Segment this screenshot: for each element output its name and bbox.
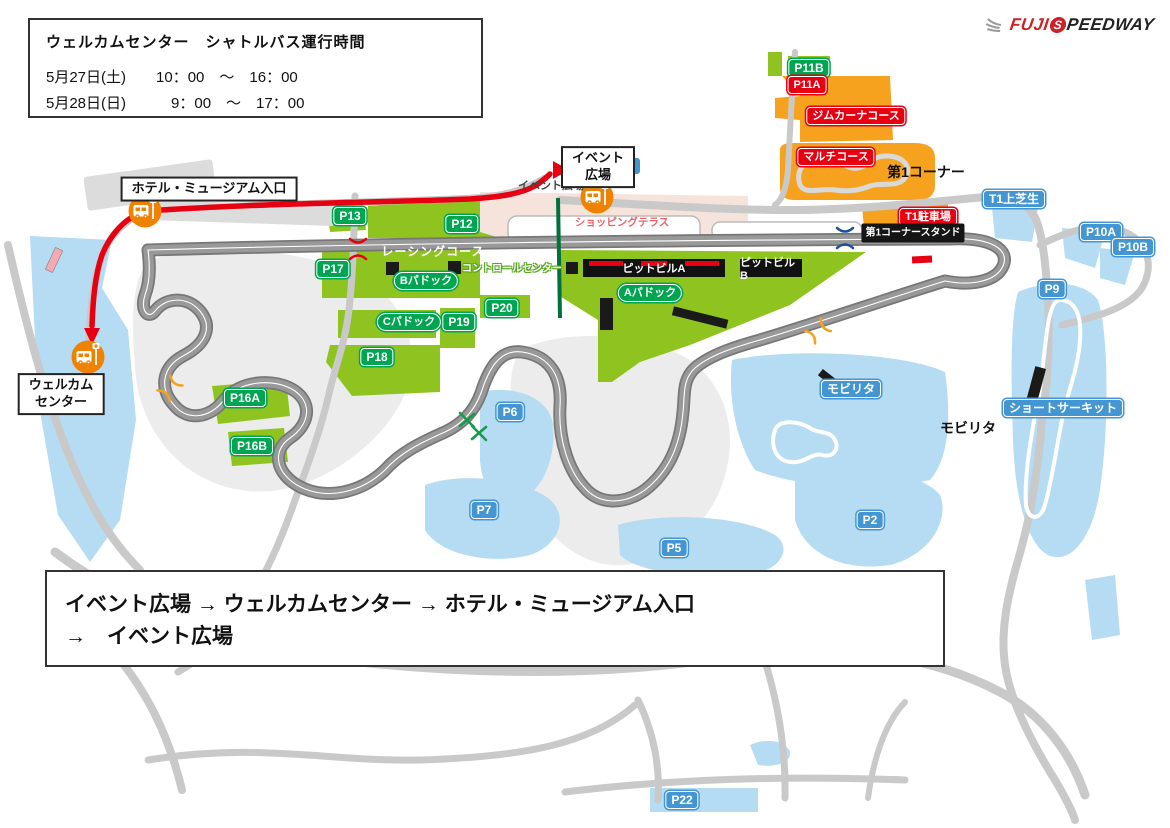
logo-peedway-text: PEEDWAY: [1065, 15, 1155, 35]
badge-c-paddock: Cパドック: [377, 313, 441, 331]
badge-p10b: P10B: [1112, 238, 1154, 256]
pit-building-b: ピットビルB: [740, 259, 802, 277]
logo-s-circle: S: [1049, 17, 1067, 33]
label-mobilitas: モビリタ: [940, 418, 996, 438]
badge-b-paddock: Bパドック: [394, 272, 458, 290]
pit-building-a: ピットビルA: [583, 259, 725, 277]
badge-p20: P20: [485, 299, 518, 317]
badge-p11a: P11A: [788, 76, 827, 94]
callout-event-plaza-line2: 広場: [572, 167, 624, 184]
callout-welcome-center-line1: ウェルカム: [29, 377, 94, 394]
callout-welcome-center-line2: センター: [29, 394, 94, 411]
shuttle-schedule-box: ウェルカムセンター シャトルバス運行時間 5月27日(土) 10：00 ～ 16…: [28, 18, 483, 118]
fuji-speedway-logo: FUJI S PEEDWAY: [983, 15, 1155, 35]
fuji-speedway-shuttle-map: { "schedule_box": { "title": "ウェルカムセンター …: [0, 0, 1170, 828]
schedule-row-sat: 5月27日(土) 10：00 ～ 16：00: [46, 66, 465, 87]
badge-a-paddock: Aパドック: [618, 284, 682, 302]
badge-p22: P22: [665, 791, 698, 809]
badge-p16b: P16B: [231, 437, 273, 455]
shuttle-route-box: イベント広場 → ウェルカムセンター → ホテル・ミュージアム入口 → イベント…: [45, 570, 945, 667]
schedule-row-sun: 5月28日(日) 9：00 ～ 17：00: [46, 92, 465, 113]
label-shopping-terrace: ショッピングテラス: [575, 215, 669, 230]
circuit-map: [0, 0, 1170, 828]
badge-p6: P6: [497, 403, 524, 421]
logo-speed-lines: [984, 16, 1009, 34]
callout-hotel-museum-entrance: ホテル・ミュージアム入口: [121, 177, 298, 202]
badge-gymkhana-course: ジムカーナコース: [806, 107, 905, 125]
pedestrian-bridge: [558, 198, 560, 318]
badge-p16a: P16A: [224, 389, 266, 407]
callout-event-plaza: イベント 広場: [561, 146, 635, 188]
route-line1: イベント広場 → ウェルカムセンター → ホテル・ミュージアム入口: [65, 589, 925, 621]
route-line2: → イベント広場: [65, 621, 925, 653]
label-control-center: コントロールセンター: [462, 260, 562, 275]
badge-t1-lawn: T1上芝生: [983, 190, 1045, 208]
callout-event-plaza-line1: イベント: [572, 150, 624, 167]
badge-short-circuit: ショートサーキット: [1003, 399, 1123, 417]
label-racing-course: レーシングコース: [381, 243, 484, 260]
badge-p7: P7: [471, 501, 498, 519]
badge-p2: P2: [857, 511, 884, 529]
badge-p18: P18: [360, 348, 393, 366]
schedule-title: ウェルカムセンター シャトルバス運行時間: [46, 31, 465, 52]
badge-multi-course: マルチコース: [797, 148, 874, 166]
badge-p9: P9: [1039, 280, 1066, 298]
badge-p12: P12: [445, 215, 478, 233]
badge-p11b: P11B: [788, 59, 829, 77]
badge-p17: P17: [316, 260, 349, 278]
badge-p13: P13: [333, 207, 366, 225]
logo-fuji-text: FUJI: [1008, 15, 1050, 35]
label-first-corner: 第1コーナー: [887, 162, 965, 182]
callout-welcome-center: ウェルカム センター: [18, 373, 105, 415]
badge-mobilitas: モビリタ: [821, 380, 881, 398]
badge-p19: P19: [442, 313, 475, 331]
badge-p5: P5: [661, 539, 688, 557]
badge-first-corner-stand: 第1コーナースタンド: [861, 224, 964, 243]
bus-stop-icon-welcome-center: [72, 341, 105, 374]
